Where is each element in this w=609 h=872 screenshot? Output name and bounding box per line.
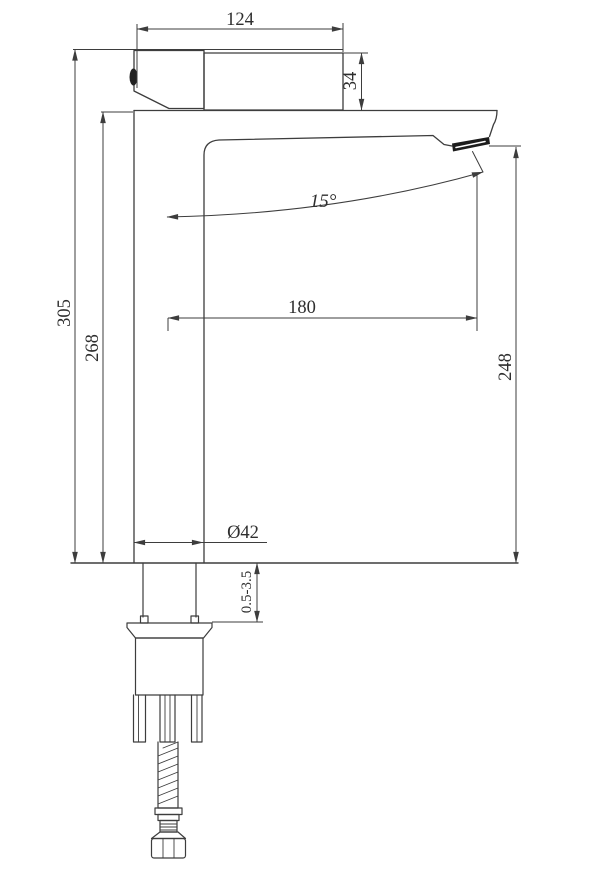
- handle-lever: [130, 51, 344, 111]
- hose-hex-facets: [163, 839, 174, 859]
- faucet-dimension-drawing: 124 34 305 268 180 248 15° Ø42 0.5-3.5: [0, 0, 609, 872]
- threaded-rod: [158, 742, 178, 808]
- supply-hose-connector: [152, 808, 186, 858]
- hose-collar-band-1: [155, 808, 182, 815]
- spout-front-profile: [490, 111, 498, 137]
- hose-crimp-ribs: [160, 824, 177, 830]
- nut-flange: [127, 623, 212, 638]
- hose-hex-nut: [152, 839, 186, 859]
- dim-label-angle-15: 15°: [310, 191, 337, 212]
- handle-nose-outline: [134, 51, 204, 109]
- shank-thread-end-left: [141, 616, 149, 623]
- mounting-nut: [127, 623, 212, 742]
- dim-label-124: 124: [226, 10, 254, 30]
- shank-tube: [143, 563, 196, 617]
- dim-label-305: 305: [55, 299, 75, 327]
- dimension-annotations: [73, 23, 521, 622]
- dim-label-34: 34: [341, 72, 361, 91]
- dim-label-diameter-42: Ø42: [227, 523, 259, 543]
- mounting-shank: [141, 563, 199, 623]
- rod-thread-hatching: [158, 742, 178, 804]
- faucet-outline: [71, 51, 518, 859]
- dim-label-268: 268: [83, 334, 103, 362]
- outlet-angle-leg: [473, 152, 484, 173]
- spout-body: [134, 111, 497, 564]
- dimension-labels: 124 34 305 268 180 248 15° Ø42 0.5-3.5: [55, 10, 516, 613]
- hose-nut-flare: [152, 832, 186, 839]
- dim-label-180: 180: [288, 298, 316, 318]
- dim-label-248: 248: [496, 353, 516, 381]
- handle-bar-outline: [204, 53, 343, 110]
- nut-tab-inner-lines: [139, 695, 198, 742]
- dim-label-deck-thickness: 0.5-3.5: [239, 571, 255, 614]
- nut-castellated-tabs: [134, 695, 203, 742]
- handle-indicator-dot: [130, 69, 138, 86]
- drawing-svg: 124 34 305 268 180 248 15° Ø42 0.5-3.5: [0, 0, 609, 872]
- hose-collar-band-2: [158, 815, 179, 821]
- nut-body: [136, 638, 204, 695]
- shank-thread-end-right: [191, 616, 199, 623]
